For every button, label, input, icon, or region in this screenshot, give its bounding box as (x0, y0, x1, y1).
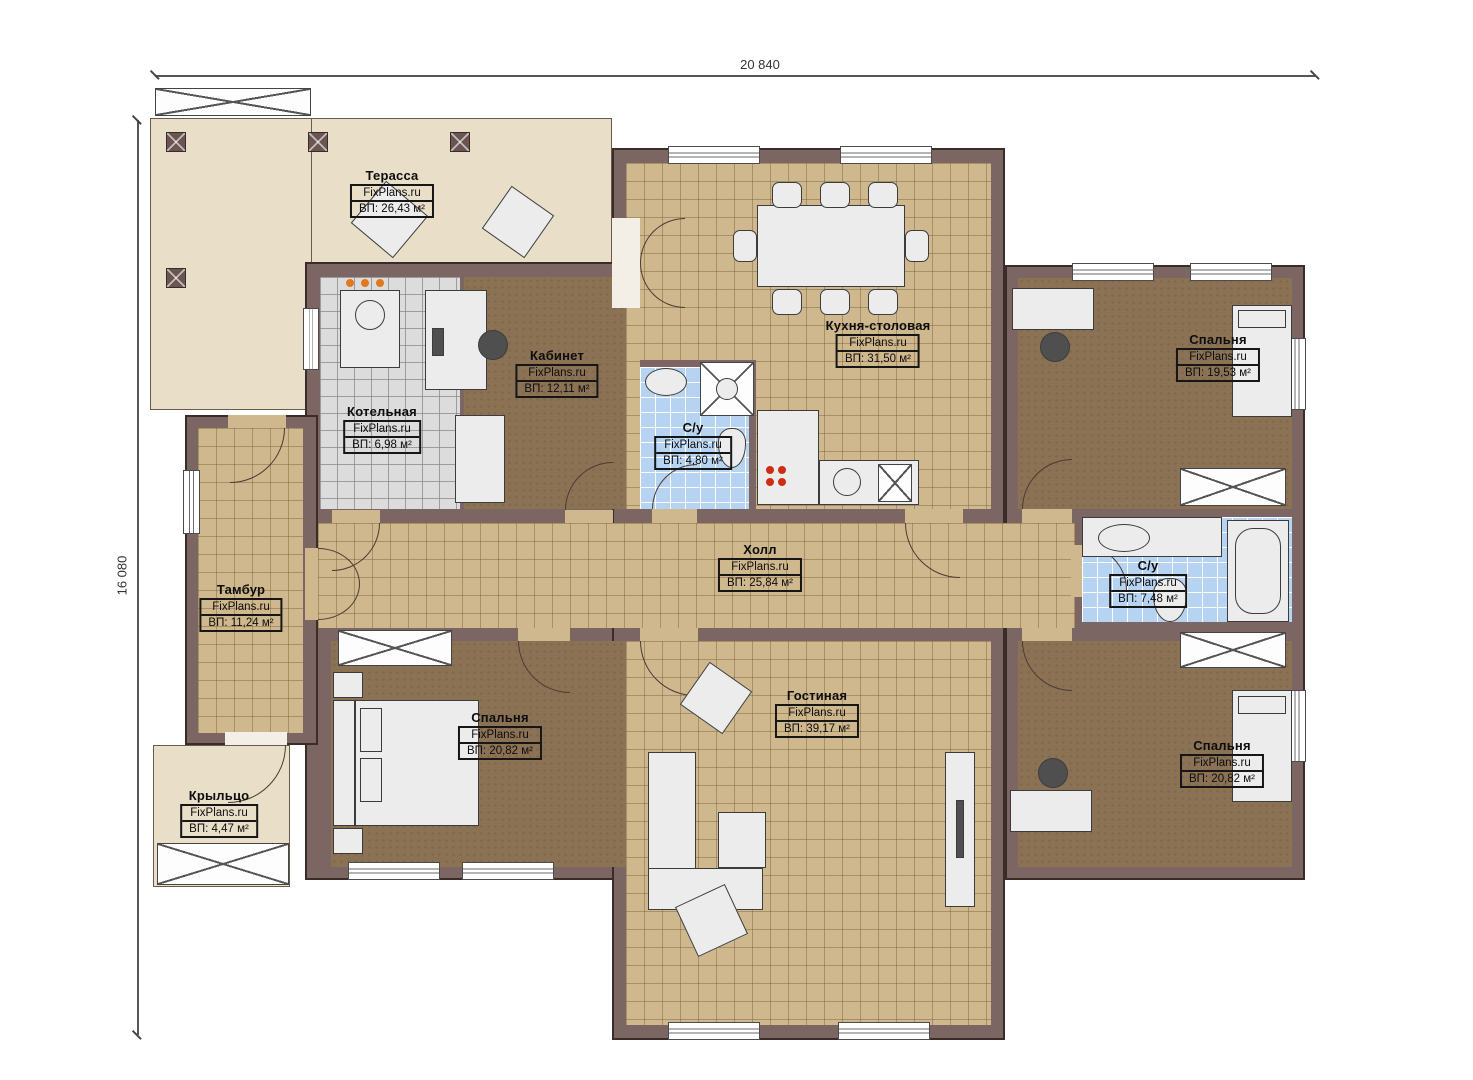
coffee-table (718, 812, 766, 868)
watermark: FixPlans.ru (1182, 756, 1262, 770)
room-name: Терасса (350, 168, 434, 183)
room-area: ВП: 6,98 м² (345, 436, 419, 452)
room-label-bath2: С/у FixPlans.ru ВП: 7,48 м² (1109, 558, 1187, 608)
room-label-office: Кабинет FixPlans.ru ВП: 12,11 м² (515, 348, 598, 398)
wardrobe (1180, 468, 1286, 506)
room-area: ВП: 25,84 м² (720, 574, 800, 590)
dining-chair (868, 182, 898, 208)
watermark: FixPlans.ru (1178, 350, 1258, 364)
floor-plan: 20 840 16 080 (0, 0, 1473, 1080)
room-area: ВП: 39,17 м² (777, 720, 857, 736)
door-gap-office-hall (565, 510, 613, 523)
door-gap-bath1-hall (652, 509, 697, 523)
desk (1010, 790, 1092, 832)
pillow (360, 758, 382, 802)
kitchen-sink (833, 468, 861, 496)
room-name: Котельная (343, 404, 421, 419)
window (1072, 263, 1154, 281)
boiler-dial (355, 300, 385, 330)
window (840, 146, 932, 164)
room-label-living: Гостиная FixPlans.ru ВП: 39,17 м² (775, 688, 859, 738)
watermark: FixPlans.ru (838, 336, 918, 350)
room-label-bedroom-tr: Спальня FixPlans.ru ВП: 19,53 м² (1176, 332, 1260, 382)
bed-headboard (333, 700, 355, 826)
dining-table (757, 205, 905, 287)
watermark: FixPlans.ru (777, 706, 857, 720)
stove-burner (766, 478, 774, 486)
stove-burner (766, 466, 774, 474)
pillow (1238, 310, 1286, 328)
door-gap-living (640, 628, 698, 641)
watermark: FixPlans.ru (352, 186, 432, 200)
watermark: FixPlans.ru (182, 806, 256, 820)
storage-cabinet (455, 415, 505, 503)
room-name: Холл (718, 542, 802, 557)
room-name: Гостиная (775, 688, 859, 703)
room-label-bedroom-br: Спальня FixPlans.ru ВП: 20,82 м² (1180, 738, 1264, 788)
shower-drain (716, 378, 738, 400)
watermark: FixPlans.ru (656, 438, 730, 452)
room-name: С/у (1109, 558, 1187, 573)
nightstand (333, 828, 363, 854)
room-label-terrace: Терасса FixPlans.ru ВП: 26,43 м² (350, 168, 434, 218)
window (1190, 263, 1272, 281)
room-area: ВП: 31,50 м² (838, 350, 918, 366)
room-area: ВП: 4,80 м² (656, 452, 730, 468)
room-name: Кухня-столовая (826, 318, 931, 333)
window (348, 862, 440, 880)
watermark: FixPlans.ru (1111, 576, 1185, 590)
flame-icon (346, 279, 354, 287)
room-area: ВП: 20,82 м² (1182, 770, 1262, 786)
pillow (1238, 696, 1286, 714)
room-area: ВП: 19,53 м² (1178, 364, 1258, 380)
room-label-boiler: Котельная FixPlans.ru ВП: 6,98 м² (343, 404, 421, 454)
room-name: Тамбур (199, 582, 282, 597)
window (668, 146, 760, 164)
stove-burner (778, 478, 786, 486)
porch-steps (157, 843, 289, 885)
room-area: ВП: 26,43 м² (352, 200, 432, 216)
terrace-column (450, 132, 470, 152)
dining-chair (733, 230, 757, 262)
hall-floor (318, 523, 1075, 628)
terrace-floor (150, 118, 312, 410)
door-gap-bedroom-tr (1022, 509, 1072, 523)
room-name: Спальня (1180, 738, 1264, 753)
nightstand (333, 672, 363, 698)
room-area: ВП: 12,11 м² (517, 380, 596, 396)
room-label-tambour: Тамбур FixPlans.ru ВП: 11,24 м² (199, 582, 282, 632)
watermark: FixPlans.ru (720, 560, 800, 574)
dining-chair (905, 230, 929, 262)
door-gap-boiler-hall (332, 510, 380, 523)
bathtub-inner (1235, 528, 1281, 614)
sink (645, 368, 687, 396)
room-label-porch: Крыльцо FixPlans.ru ВП: 4,47 м² (180, 788, 258, 838)
terrace-column (166, 268, 186, 288)
door-gap-bedroom-br (1022, 628, 1072, 641)
office-chair (478, 330, 508, 360)
wardrobe (1180, 632, 1286, 668)
watermark: FixPlans.ru (517, 366, 596, 380)
room-name: С/у (654, 420, 732, 435)
dimension-width-label: 20 840 (700, 57, 820, 72)
room-name: Кабинет (515, 348, 598, 363)
watermark: FixPlans.ru (345, 422, 419, 436)
door-gap-terrace-tambour (228, 415, 286, 428)
stove-burner (778, 466, 786, 474)
window (838, 1022, 930, 1040)
kitchen-counter (757, 410, 819, 505)
dining-chair (820, 182, 850, 208)
room-label-hall: Холл FixPlans.ru ВП: 25,84 м² (718, 542, 802, 592)
office-chair (1038, 758, 1068, 788)
dining-chair (772, 182, 802, 208)
door-gap-tambour-porch (225, 732, 287, 745)
watermark: FixPlans.ru (460, 728, 540, 742)
room-label-kitchen: Кухня-столовая FixPlans.ru ВП: 31,50 м² (826, 318, 931, 368)
terrace-column (308, 132, 328, 152)
door-gap-bedroom-bl (518, 628, 570, 641)
window (462, 862, 554, 880)
terrace-column (166, 132, 186, 152)
window (668, 1022, 760, 1040)
door-gap-bath2 (1071, 545, 1082, 597)
watermark: FixPlans.ru (201, 600, 280, 614)
room-area: ВП: 20,82 м² (460, 742, 540, 758)
dimension-height-label: 16 080 (115, 526, 130, 626)
dining-chair (820, 289, 850, 315)
window (303, 308, 319, 370)
room-area: ВП: 4,47 м² (182, 820, 256, 836)
room-label-bath1: С/у FixPlans.ru ВП: 4,80 м² (654, 420, 732, 470)
fridge (878, 464, 912, 502)
tv (956, 800, 964, 858)
desk (1012, 288, 1094, 330)
door-gap-tambour-hall (305, 548, 318, 620)
dining-chair (772, 289, 802, 315)
room-name: Спальня (1176, 332, 1260, 347)
door-gap-terrace-kitchen (612, 218, 640, 308)
office-chair (1040, 332, 1070, 362)
pillow (360, 708, 382, 752)
door-gap-kitchen-hall (905, 509, 963, 523)
dimension-line-top (155, 75, 1315, 77)
dimension-line-left (137, 120, 139, 1035)
window (183, 470, 200, 534)
room-area: ВП: 11,24 м² (201, 614, 280, 630)
wardrobe (338, 630, 452, 666)
monitor (432, 328, 444, 356)
flame-icon (376, 279, 384, 287)
terrace-roof-hatch (155, 88, 311, 116)
dining-chair (868, 289, 898, 315)
room-area: ВП: 7,48 м² (1111, 590, 1185, 606)
room-name: Спальня (458, 710, 542, 725)
sink (1098, 524, 1150, 552)
room-name: Крыльцо (180, 788, 258, 803)
room-label-bedroom-bl: Спальня FixPlans.ru ВП: 20,82 м² (458, 710, 542, 760)
flame-icon (361, 279, 369, 287)
